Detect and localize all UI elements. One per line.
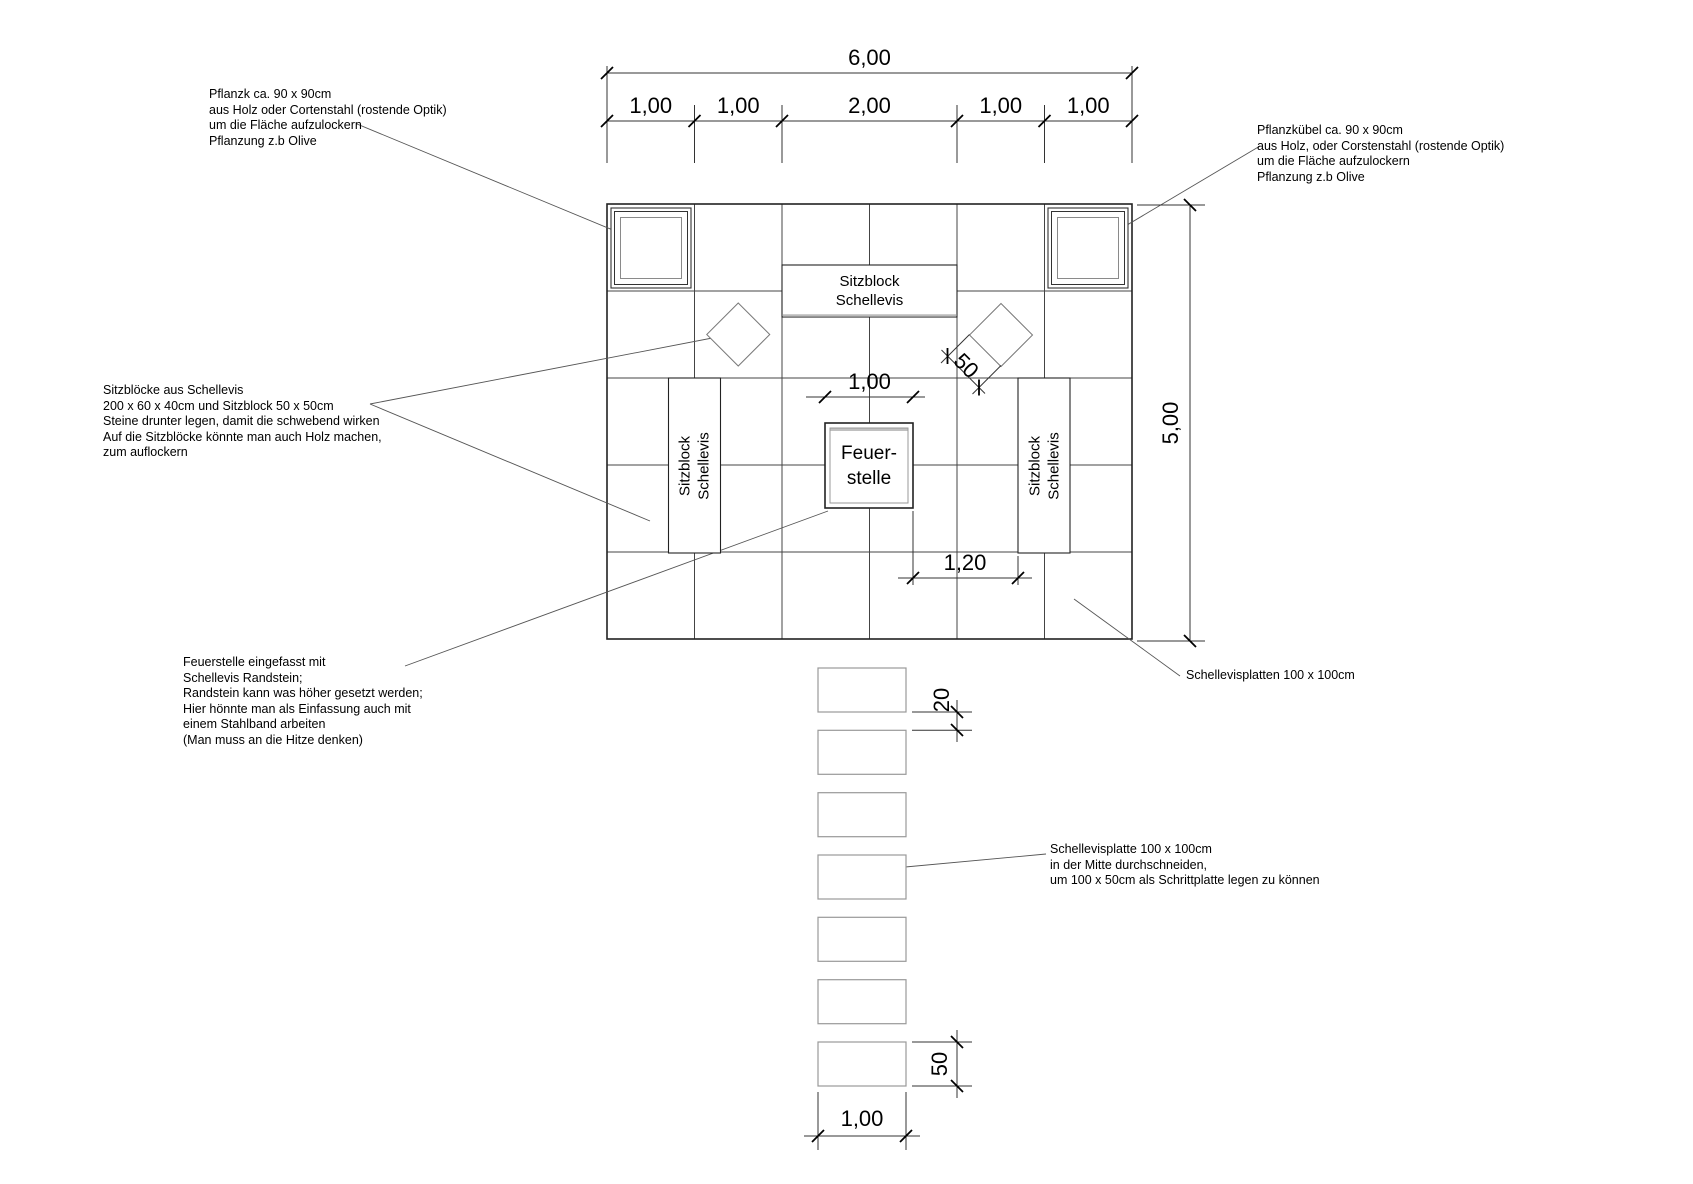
annotation-planter-right: Pflanzkübel ca. 90 x 90cm aus Holz, oder… [1257,123,1504,185]
dim-label-seg-3: 2,00 [848,95,891,117]
planter-right [1048,208,1128,288]
path-plates [818,668,906,1086]
dim-label-seg-5: 1,00 [1067,95,1110,117]
seatblock-right-label: Sitzblock Schellevis [1018,378,1070,553]
dim-label-path-gap: 20 [931,688,953,712]
annotation-feuerstelle: Feuerstelle eingefasst mit Schellevis Ra… [183,655,423,748]
diamond-seat-left [707,303,770,366]
annotation-seat-blocks: Sitzblöcke aus Schellevis 200 x 60 x 40c… [103,383,382,461]
dim-label-path-plate: 50 [929,1052,951,1076]
annotation-step-plate: Schellevisplatte 100 x 100cm in der Mitt… [1050,842,1320,889]
diamond-seat-right [970,304,1033,367]
dim-label-seg-1: 1,00 [629,95,672,117]
planter-left [611,208,691,288]
dim-label-height: 5,00 [1160,402,1182,445]
dim-label-seg-4: 1,00 [979,95,1022,117]
dim-label-seg-2: 1,00 [717,95,760,117]
dim-label-path-width: 1,00 [841,1108,884,1130]
seatblock-left-label: Sitzblock Schellevis [669,378,721,553]
leader-feuerstelle [405,511,828,666]
dim-label-feuerstelle-width: 1,00 [848,371,891,393]
site-plan-drawing: 6,00 1,00 1,00 2,00 1,00 1,00 5,00 1,00 … [0,0,1693,1184]
dim-label-gap: 1,20 [944,552,987,574]
leader-plates [1074,599,1180,676]
annotation-planter-left: Pflanzk ca. 90 x 90cm aus Holz oder Cort… [209,87,447,149]
leader-seatblocks-lower [370,404,650,521]
annotation-plates: Schellevisplatten 100 x 100cm [1186,668,1355,684]
dim-label-total-width: 6,00 [848,47,891,69]
seatblock-horizontal-label: Sitzblock Schellevis [782,265,957,317]
feuerstelle-label: Feuer- stelle [825,423,913,508]
